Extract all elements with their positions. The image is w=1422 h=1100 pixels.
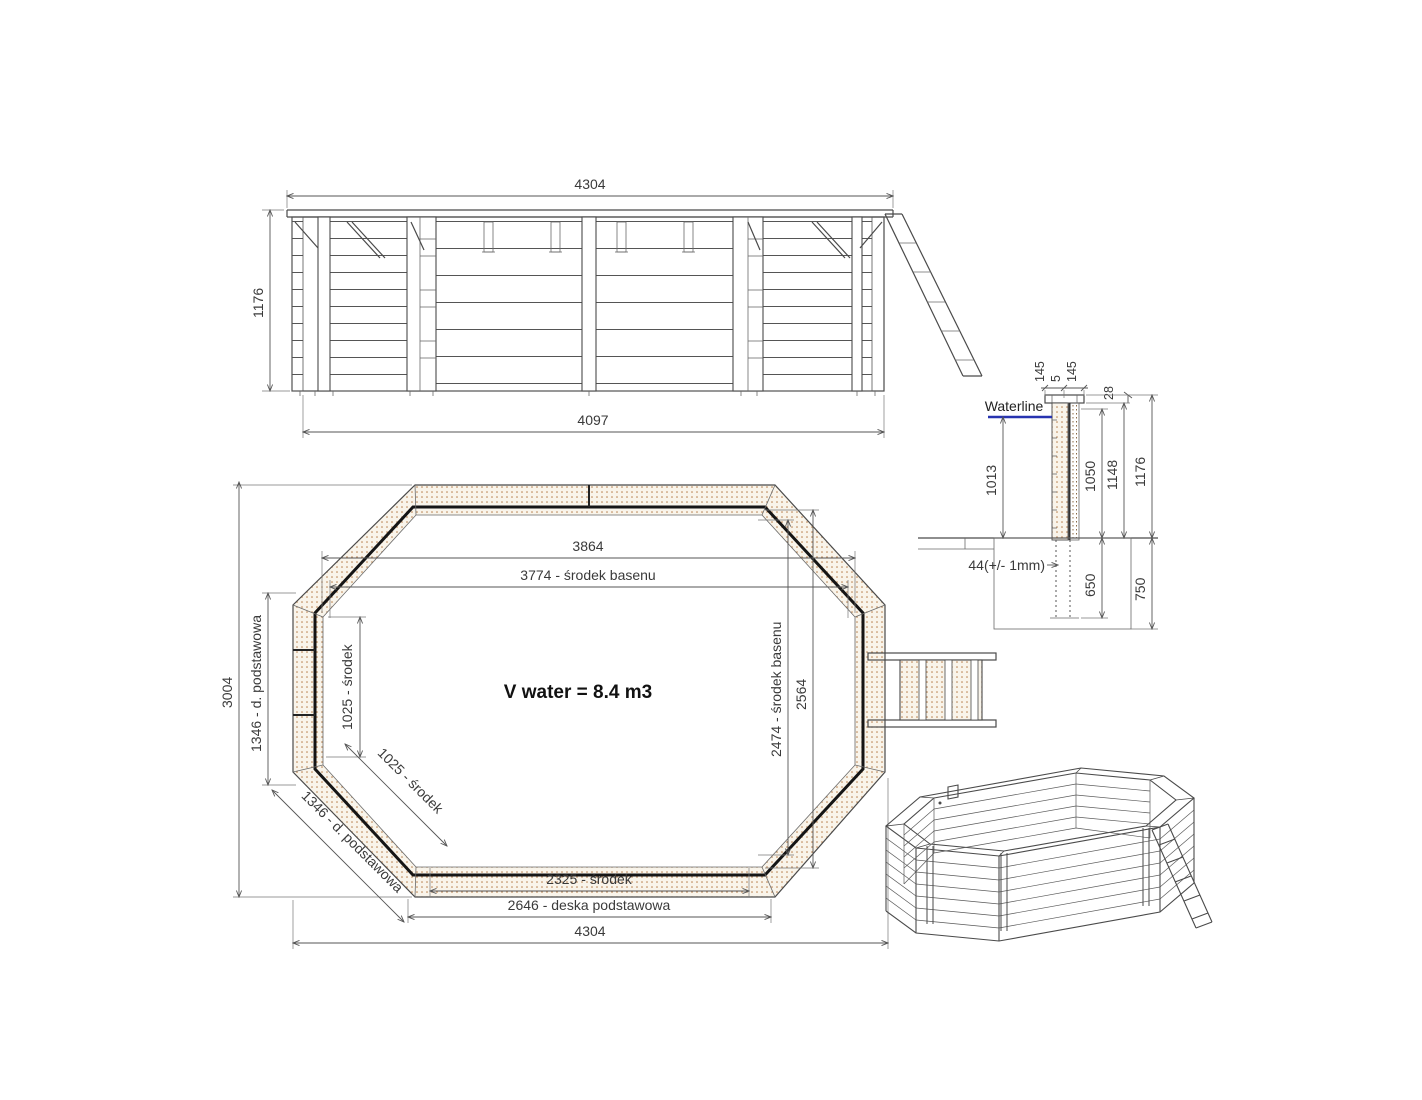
plan-dim-base-board: 2646 - deska podstawowa (508, 897, 671, 913)
section-dim-wall-inner: 1050 (1082, 461, 1098, 492)
elevation-ladder (885, 214, 982, 376)
iso-front-planks (886, 810, 1194, 928)
section-dim-tolerance: 44(+/- 1mm) (968, 557, 1045, 573)
plan-dim-total-height: 3004 (219, 677, 235, 708)
plan-dim-inner-width: 3864 (572, 538, 603, 554)
plan-view: V water = 8.4 m3 3864 3774 - środek base… (219, 482, 996, 949)
plan-dim-inner-height: 2564 (793, 679, 809, 710)
elevation-view: 4304 1176 4097 (250, 176, 982, 438)
section-dim-below-ground: 650 (1082, 573, 1098, 597)
elevation-coping (287, 210, 893, 217)
elevation-dim-top: 4304 (574, 176, 605, 192)
plan-dim-center-height: 2474 - środek basenu (768, 622, 784, 757)
plan-dim-side-vert: 1025 - środek (339, 643, 355, 730)
section-dim-wall-outer: 1148 (1104, 460, 1120, 490)
section-dim-water-depth: 1013 (983, 465, 999, 496)
section-dim-cap-left: 145 (1033, 361, 1047, 382)
iso-back-planks (904, 773, 1150, 884)
section-dim-foundation-depth: 750 (1132, 577, 1148, 601)
water-volume-label: V water = 8.4 m3 (504, 682, 652, 703)
plan-dim-side-diag: 1025 - środek (375, 745, 448, 818)
technical-drawing-page: 4304 1176 4097 (0, 0, 1422, 1100)
iso-ladder (1152, 824, 1212, 928)
plan-dim-base-vert: 1346 - d. podstawowa (248, 615, 264, 752)
waterline-label: Waterline (985, 398, 1044, 414)
section-dim-total-height: 1176 (1132, 457, 1148, 487)
section-dim-cap-gap: 5 (1049, 375, 1063, 382)
plan-dim-bottom-center: 2325 - środek (546, 871, 633, 887)
plan-dim-center-width: 3774 - środek basenu (520, 567, 655, 583)
wall-feet (300, 391, 875, 396)
elevation-dim-bottom: 4097 (577, 412, 608, 428)
section-dim-cap-thickness: 28 (1102, 386, 1116, 400)
plan-ladder (868, 653, 996, 727)
section-foundation (994, 538, 1131, 629)
iso-corner-posts (927, 828, 1149, 931)
section-view: Waterline 145 5 145 28 1013 1050 (918, 361, 1158, 629)
section-cap (1045, 395, 1084, 403)
section-wall (1050, 403, 1079, 618)
elevation-wall (292, 217, 884, 396)
section-dim-cap-right: 145 (1065, 361, 1079, 382)
pool-technical-drawing: 4304 1176 4097 (0, 0, 1422, 1100)
plan-dim-total-width: 4304 (574, 923, 605, 939)
section-ground (918, 538, 1158, 629)
elevation-dim-height: 1176 (250, 288, 266, 318)
iso-view (886, 768, 1212, 941)
